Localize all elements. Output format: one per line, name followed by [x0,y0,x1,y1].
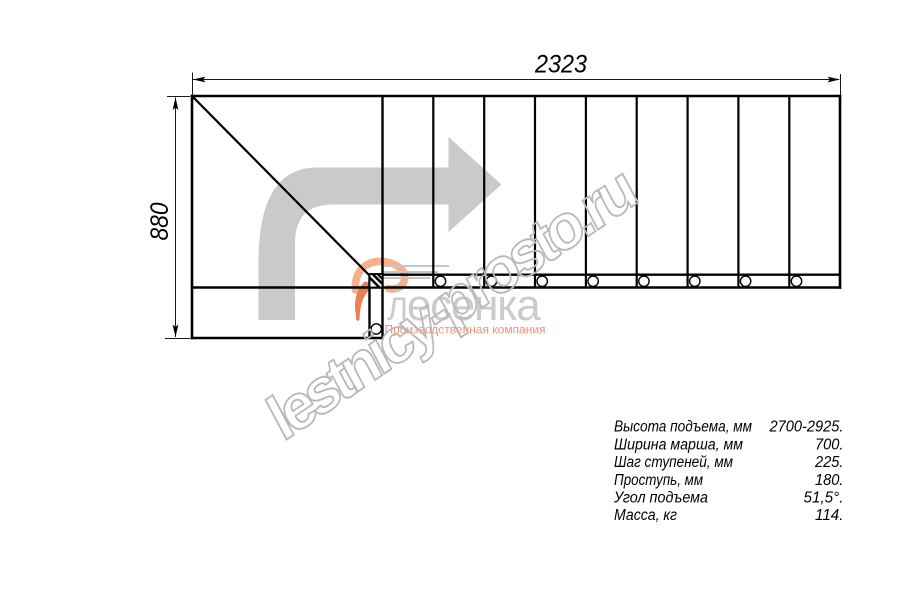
svg-text:114.: 114. [815,507,844,524]
svg-text:51,5°.: 51,5°. [804,489,844,506]
svg-text:700.: 700. [815,436,844,453]
svg-text:225.: 225. [814,454,843,471]
svg-text:Шаг ступеней, мм: Шаг ступеней, мм [614,454,733,471]
svg-text:Масса, кг: Масса, кг [614,507,677,524]
svg-text:Угол подъема: Угол подъема [613,489,708,506]
svg-text:Ширина марша, мм: Ширина марша, мм [614,436,743,453]
svg-text:2323: 2323 [534,51,587,79]
svg-text:Проступь, мм: Проступь, мм [614,472,703,489]
svg-text:2700-2925.: 2700-2925. [769,419,844,436]
svg-text:180.: 180. [815,472,844,489]
svg-text:Высота подъема, мм: Высота подъема, мм [614,419,752,436]
svg-text:880: 880 [146,202,174,240]
